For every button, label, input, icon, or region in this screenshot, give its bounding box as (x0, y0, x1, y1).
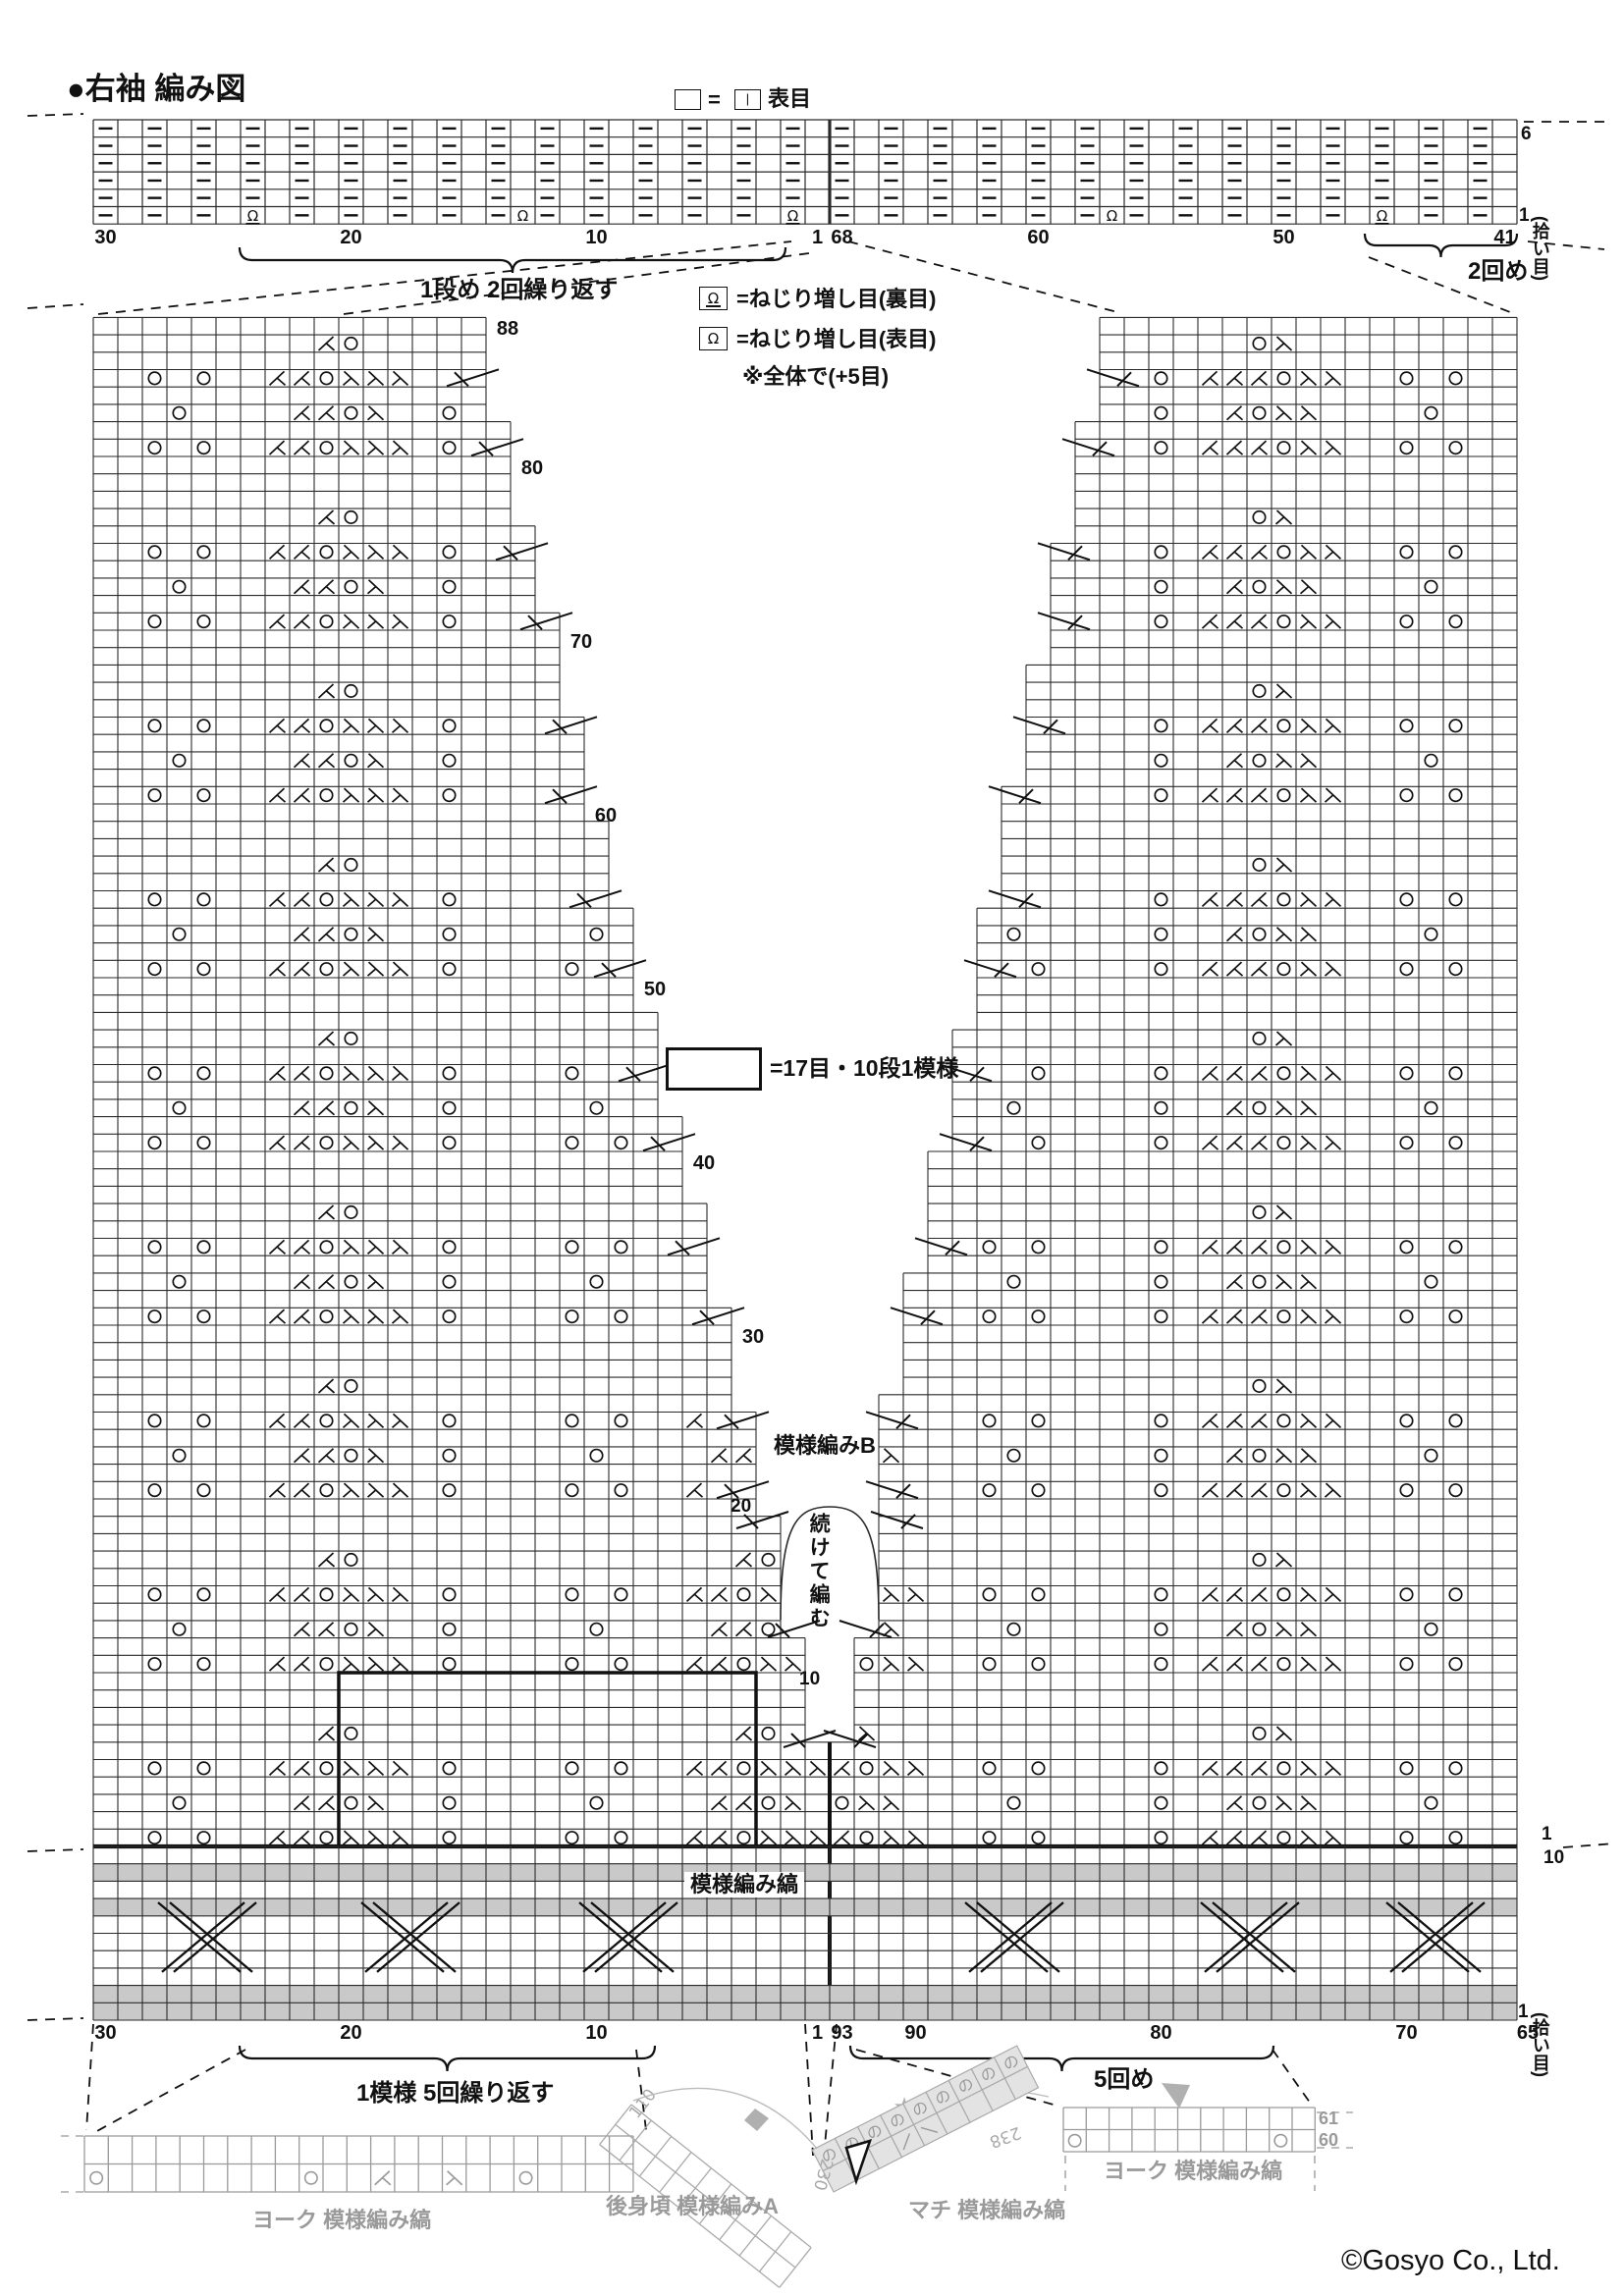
svg-text:Ω: Ω (517, 207, 528, 225)
top-brace2-label: 2回め (1468, 259, 1528, 285)
top-band-col-41: 41 (1493, 227, 1515, 249)
bottom-band-col-30: 30 (94, 2022, 116, 2045)
legend-motif-label: =17目・10段1模様 (770, 1056, 958, 1081)
page-title: ●右袖 編み図 (67, 73, 245, 106)
svg-text:Ω: Ω (787, 207, 798, 225)
main-row-40: 40 (693, 1152, 715, 1175)
yoke-right-row60: 60 (1319, 2130, 1338, 2151)
yoke-right-label: ヨーク 模様編み縞 (1104, 2160, 1282, 2183)
yoke-left-label: ヨーク 模様編み縞 (252, 2209, 431, 2232)
svg-text:Ω: Ω (247, 207, 258, 225)
bottom-brace-right-label: 5回め (1094, 2067, 1154, 2093)
svg-text:238: 238 (987, 2122, 1023, 2152)
bottom-band-col-90: 90 (904, 2022, 926, 2045)
top-band-row6-label: 6 (1521, 124, 1532, 145)
main-row-60: 60 (595, 805, 617, 828)
twisted-increase-knit-icon: Ω (699, 327, 728, 350)
top-band-col-60: 60 (1027, 227, 1049, 249)
bottom-band-row10-label: 10 (1543, 1847, 1564, 1869)
copyright: ©Gosyo Co., Ltd. (1341, 2246, 1560, 2277)
top-band-col-20: 20 (340, 227, 361, 249)
main-row-30: 30 (742, 1326, 764, 1349)
bottom-band-col-10: 10 (585, 2022, 607, 2045)
blank-square-icon (675, 89, 701, 110)
legend-inc-purl-label: =ねじり増し目(裏目) (736, 288, 937, 311)
main-row-70: 70 (570, 631, 592, 654)
svg-text:Ω: Ω (1107, 207, 1117, 225)
main-row-50: 50 (644, 979, 666, 1001)
bottom-band-row1-label: 1 (1518, 2002, 1529, 2023)
top-band-col-1: 1 (812, 227, 823, 249)
main-row-80: 80 (521, 457, 543, 480)
gusset-label: マチ 模様編み縞 (908, 2199, 1065, 2222)
main-chart-symbols (148, 337, 1461, 1844)
bottom-band-col-1: 1 (812, 2022, 823, 2045)
row-number-1: 1 (1542, 1824, 1552, 1845)
bottom-band-col-80: 80 (1150, 2022, 1171, 2045)
bottom-band-col-70: 70 (1395, 2022, 1417, 2045)
legend-knit-label: 表目 (768, 87, 811, 111)
knitting-chart-page: ΩΩΩΩΩ110★ののののののののの238230 ●右袖 編み図 = | 表目 … (0, 0, 1624, 2296)
svg-text:Ω: Ω (1377, 207, 1387, 225)
bottom-band-col-65: 65 (1517, 2022, 1539, 2045)
legend-total-note: ※全体で(+5目) (742, 365, 889, 389)
yoke-left-strip (84, 2136, 633, 2192)
bottom-band (93, 1846, 1517, 2071)
bullet-icon: ● (67, 72, 85, 106)
bottom-brace-left-label: 1模様 5回繰り返す (356, 2081, 554, 2107)
yoke-right-strip (1063, 2083, 1315, 2152)
continue-knitting-label: 続けて編む (807, 1513, 830, 1630)
top-band-col-30: 30 (94, 227, 116, 249)
motif-box-icon (666, 1047, 762, 1091)
top-brace-label: 1段め 2回繰り返す (420, 278, 618, 303)
gusset-strip: ★ののののののののの238230 (809, 2046, 1049, 2193)
legend-equals: = (708, 88, 721, 112)
top-band-col-10: 10 (585, 227, 607, 249)
yoke-right-row61: 61 (1319, 2109, 1338, 2129)
top-band-col-68: 68 (831, 227, 852, 249)
top-band-col-50: 50 (1272, 227, 1294, 249)
pattern-b-label: 模様編みB (774, 1434, 876, 1458)
row-number-20: 20 (731, 1496, 751, 1518)
back-body-label: 後身頃 模様編みA (606, 2195, 779, 2218)
main-row-88: 88 (497, 318, 518, 341)
top-band-pickup-label: (拾い目) (1530, 216, 1549, 281)
bottom-band-col-93: 93 (831, 2022, 852, 2045)
row-number-10: 10 (799, 1669, 820, 1690)
svg-text:110: 110 (625, 2085, 661, 2122)
bottom-band-col-20: 20 (340, 2022, 361, 2045)
top-band-row1-label: 1 (1519, 205, 1530, 227)
twisted-increase-purl-icon: Ω (699, 287, 728, 310)
top-band-grid: ΩΩΩΩΩ (93, 120, 1517, 273)
legend-inc-knit-label: =ねじり増し目(表目) (736, 328, 937, 351)
knit-stitch-icon: | (734, 89, 761, 110)
stripe-band-label: 模様編み縞 (684, 1872, 804, 1897)
